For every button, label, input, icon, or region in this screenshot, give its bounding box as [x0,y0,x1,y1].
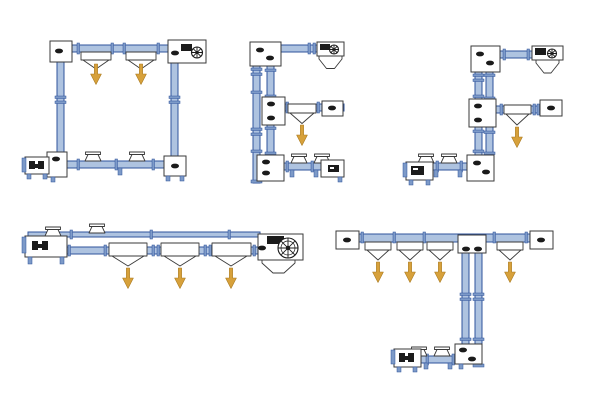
discharge-spout [319,56,342,69]
drive-wheel-icon [548,49,557,58]
discharge-hopper [397,242,423,260]
conveyor-configurations-diagram [0,0,600,400]
inlet-hopper [129,152,145,161]
corner-unit [164,156,186,181]
junction-unit [458,235,486,253]
motor-icon [320,44,330,50]
discharge-hopper [504,105,531,125]
flow-arrow-icon [91,64,102,85]
drive-wheel-icon [192,47,203,58]
flow-arrow-icon [123,268,134,289]
inlet-unit [321,160,344,182]
inlet-unit [403,162,433,185]
flow-arrow-icon [405,262,416,283]
discharge-hopper [427,242,453,260]
motor-icon [181,44,192,51]
inlet-unit [22,157,49,179]
discharge-hopper [212,243,251,266]
drive-wheel-icon [330,45,339,54]
flow-arrow-icon [136,64,147,85]
inlet-hopper [45,227,61,236]
flow-arrow-icon [435,262,446,283]
discharge-spout [536,60,559,73]
tube-segment-right [171,63,178,168]
inlet-unit [391,349,421,372]
corner-unit [471,46,500,72]
config-e-shape [250,42,344,183]
corner-unit [47,152,67,182]
discharge-spout [262,260,295,273]
tube-segment-left [57,52,64,168]
end-unit [336,231,359,249]
end-unit [540,100,562,116]
discharge-hopper [288,104,316,124]
discharge-hopper [161,243,199,266]
config-f-shape [403,46,563,185]
tube-segment-top-run [338,234,552,242]
drive-unit [168,40,206,63]
end-unit [322,101,343,116]
inlet-hopper [89,224,105,233]
end-unit [530,231,553,249]
corner-unit [469,99,496,127]
drive-unit [532,46,563,73]
drive-unit [258,234,303,273]
discharge-hopper [365,242,391,260]
config-closed-loop [22,40,206,182]
inlet-unit [22,236,67,264]
flow-arrow-icon [512,127,523,148]
discharge-hopper [497,242,523,260]
tube-segment-foot [420,356,457,363]
motor-icon [535,48,546,55]
config-in-line [22,224,303,289]
corner-unit [50,41,72,62]
corner-unit [257,155,284,181]
flow-arrow-icon [226,268,237,289]
drive-wheel-icon [278,238,298,258]
tube-flanges [55,43,180,175]
flow-arrow-icon [297,125,308,146]
discharge-hopper [109,243,147,266]
corner-unit [262,97,285,125]
inlet-hopper [291,154,307,163]
tube-segment-top [57,45,178,52]
flow-arrow-icon [175,268,186,289]
drive-unit [317,42,344,69]
inlet-hopper [434,347,450,356]
tube-segment-spine-inner [486,126,493,156]
inlet-hopper [85,152,101,161]
corner-unit [467,155,494,181]
inlet-hopper [441,154,457,163]
flow-arrow-icon [373,262,384,283]
flow-arrow-icon [505,262,516,283]
config-t-shape [336,231,553,372]
corner-unit [250,42,281,66]
